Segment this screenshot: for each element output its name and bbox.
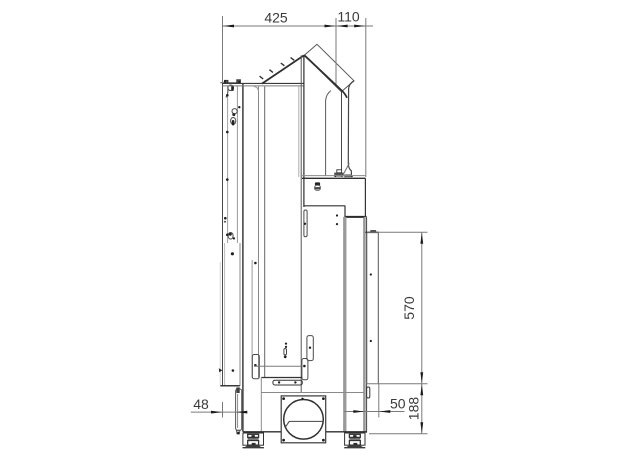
svg-text:570: 570 (401, 296, 417, 320)
svg-text:48: 48 (193, 396, 209, 412)
svg-text:425: 425 (264, 10, 288, 26)
svg-text:188: 188 (406, 397, 422, 421)
svg-text:50: 50 (390, 396, 406, 412)
svg-text:110: 110 (337, 9, 360, 25)
